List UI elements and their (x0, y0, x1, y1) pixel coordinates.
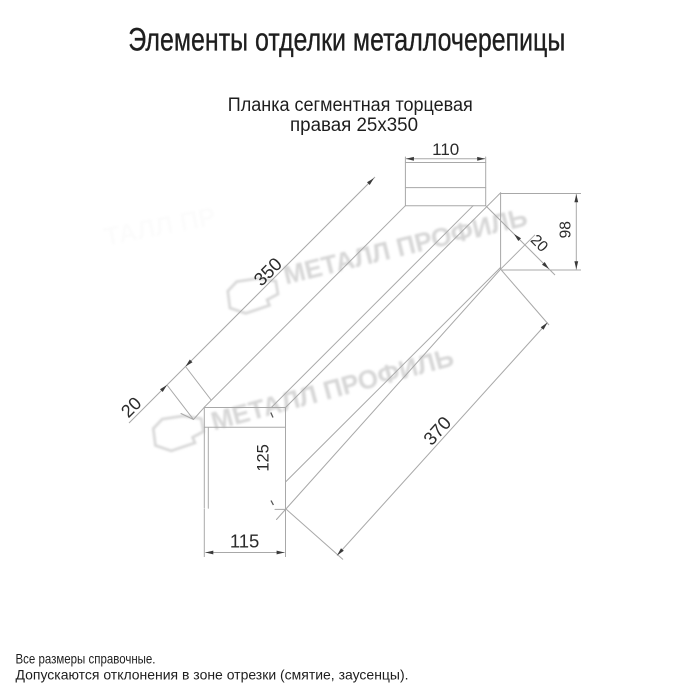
svg-text:Допускаются отклонения в зоне: Допускаются отклонения в зоне отрезки (с… (16, 667, 409, 683)
svg-text:Все размеры справочные.: Все размеры справочные. (16, 651, 156, 667)
svg-text:98: 98 (557, 221, 574, 238)
svg-text:правая 25x350: правая 25x350 (290, 115, 418, 136)
svg-text:Элементы отделки металлочерепи: Элементы отделки металлочерепицы (128, 22, 565, 58)
svg-text:Планка сегментная торцевая: Планка сегментная торцевая (228, 95, 473, 116)
svg-text:115: 115 (230, 530, 260, 551)
svg-text:110: 110 (432, 140, 459, 159)
svg-text:125: 125 (255, 444, 273, 472)
